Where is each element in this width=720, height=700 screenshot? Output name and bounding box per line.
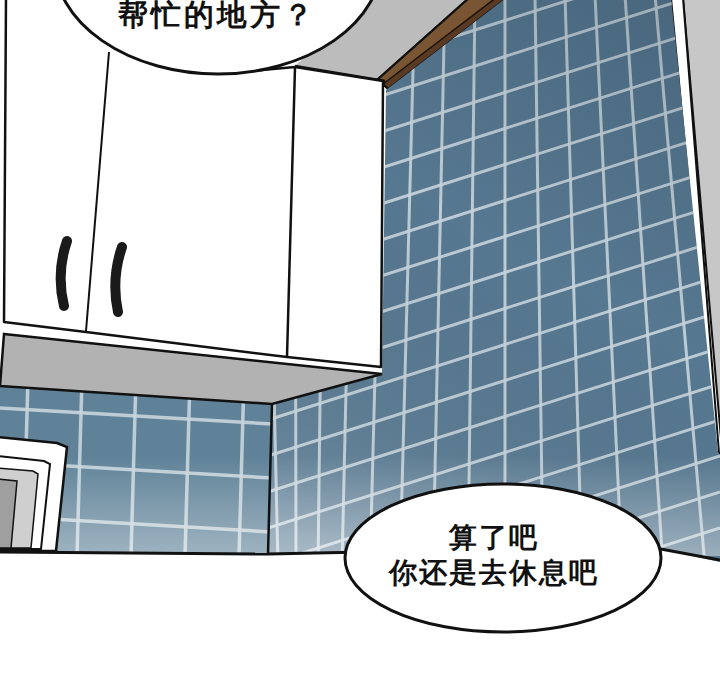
speech-bubble-bottom: 算了吧 你还是去休息吧 xyxy=(345,484,661,632)
window-frame xyxy=(0,437,67,551)
speech-bubble-bottom-line-2: 你还是去休息吧 xyxy=(388,557,599,588)
speech-bubble-bottom-line-1: 算了吧 xyxy=(448,522,539,553)
comic-panel: 帮忙的地方？ 算了吧 你还是去休息吧 xyxy=(0,0,720,700)
left-wall-bottom-edge xyxy=(0,552,268,554)
speech-bubble-top-text: 帮忙的地方？ xyxy=(117,0,316,31)
